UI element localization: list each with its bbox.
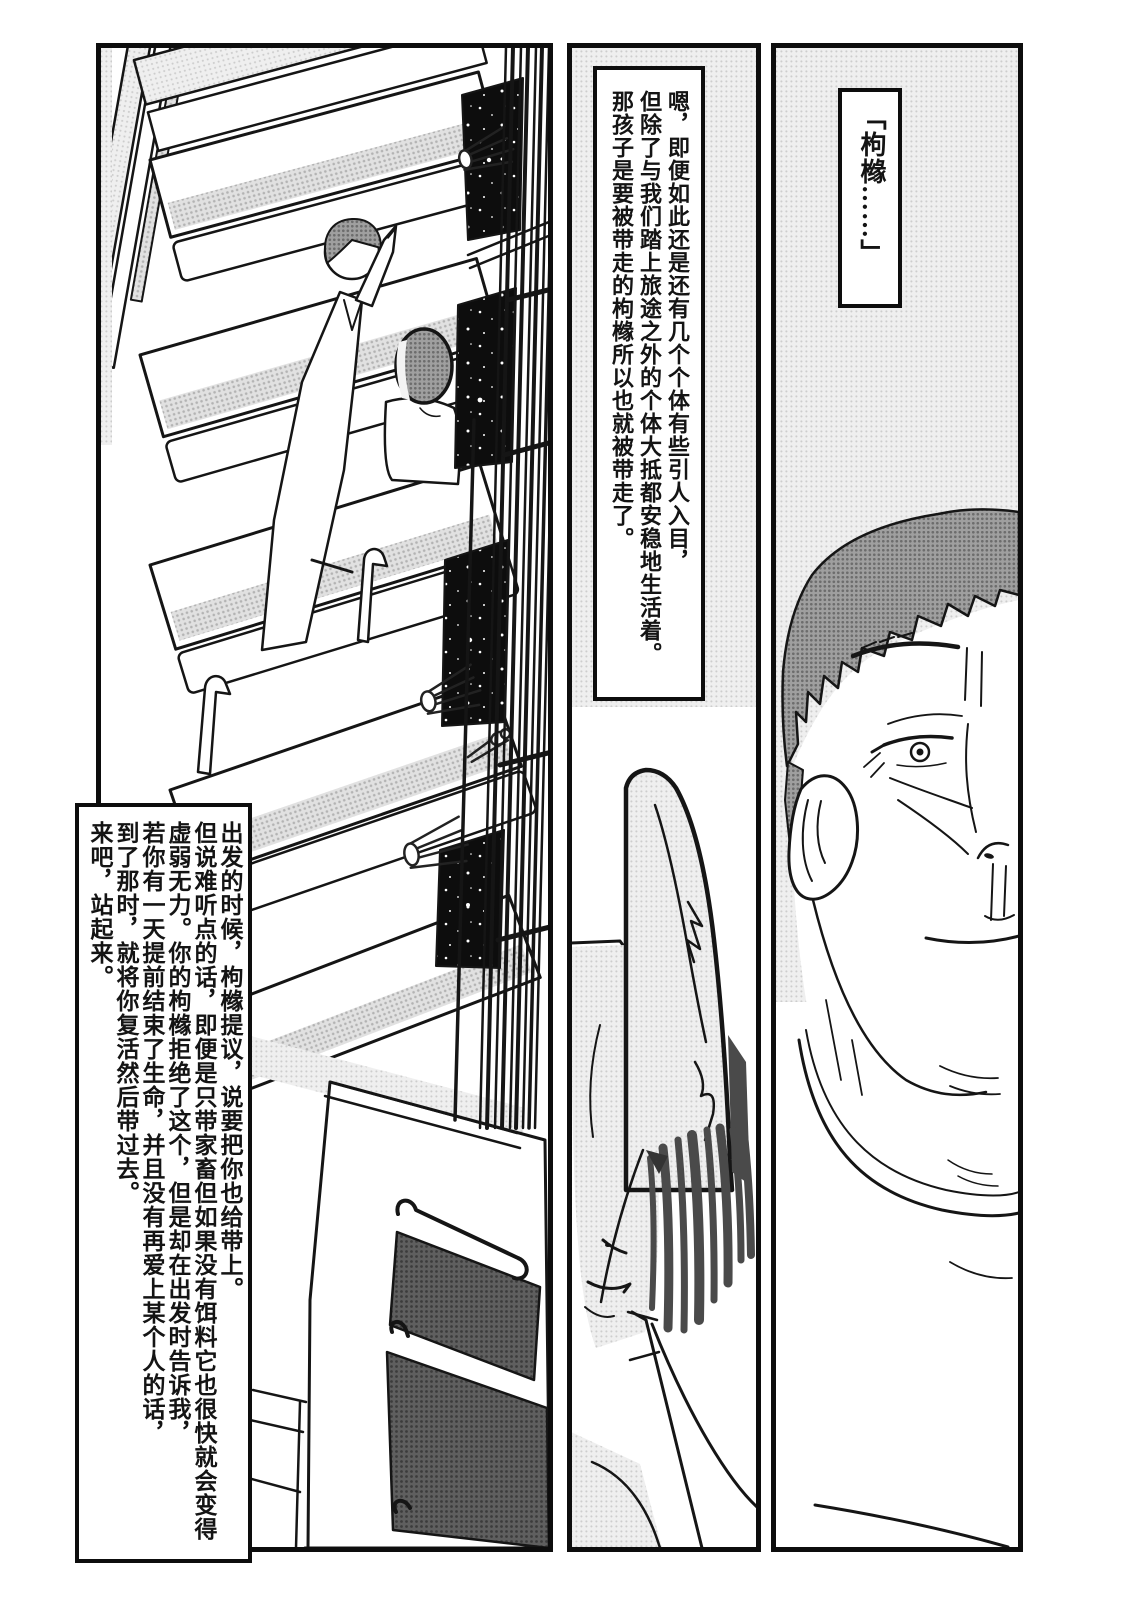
narration-box-middle: 嗯，即便如此还是还有几个个体有些引人入目， 但除了与我们踏上旅途之外的个体大抵都…: [593, 66, 705, 701]
dialogue-text: 「枸橼……」: [854, 104, 886, 292]
narration-text: 嗯，即便如此还是还有几个个体有些引人入目， 但除了与我们踏上旅途之外的个体大抵都…: [607, 90, 691, 677]
dialogue-box-right: 「枸橼……」: [838, 88, 902, 308]
narration-box-left: 出发的时候，枸橼提议，说要把你也给带上。 但说难听点的话，即便是只带家畜但如果没…: [75, 803, 252, 1563]
figure-seated: [385, 329, 460, 484]
narration-text: 出发的时候，枸橼提议，说要把你也给带上。 但说难听点的话，即便是只带家畜但如果没…: [85, 821, 242, 1545]
